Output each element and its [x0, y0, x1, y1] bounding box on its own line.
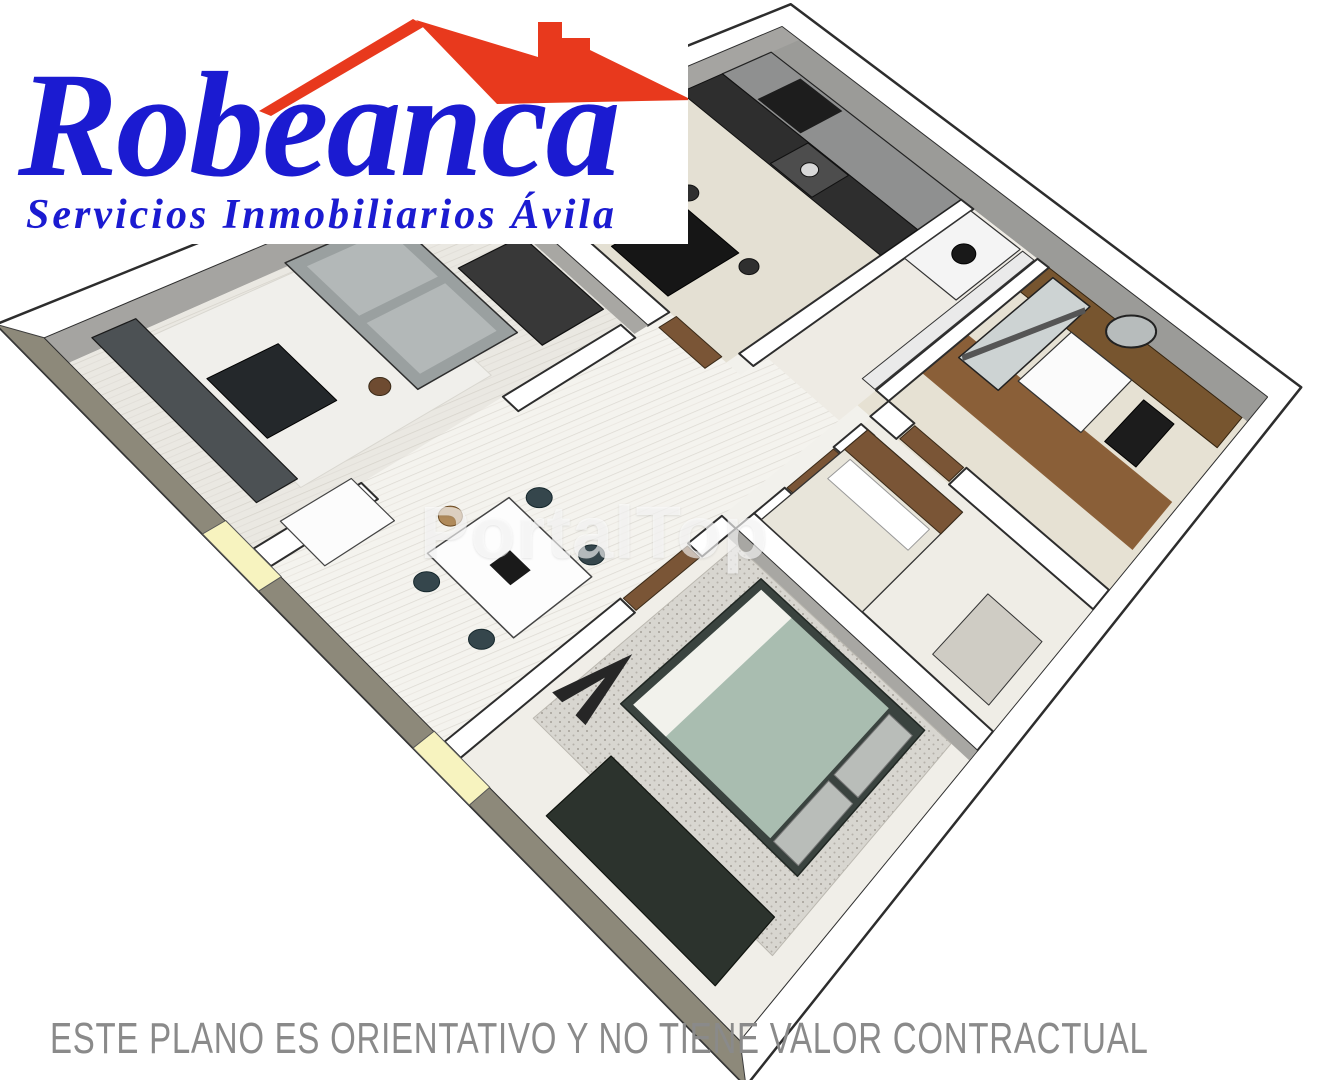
floor-plan-page: Robeanca Servicios Inmobiliarios Ávila P… — [0, 0, 1336, 1080]
disclaimer-text: ESTE PLANO ES ORIENTATIVO Y NO TIENE VAL… — [50, 1014, 1149, 1064]
brand-tagline: Servicios Inmobiliarios Ávila — [26, 194, 617, 236]
stove-burner — [801, 163, 819, 177]
washer-drum — [952, 244, 976, 264]
side-table — [369, 378, 391, 396]
agency-logo: Robeanca Servicios Inmobiliarios Ávila — [0, 0, 688, 244]
dining-chair-4 — [469, 629, 495, 649]
kitchen-stool-2 — [739, 259, 759, 275]
bath-mirror — [1106, 316, 1156, 348]
brand-name: Robeanca — [18, 50, 619, 200]
watermark: PortalTop — [420, 490, 769, 575]
